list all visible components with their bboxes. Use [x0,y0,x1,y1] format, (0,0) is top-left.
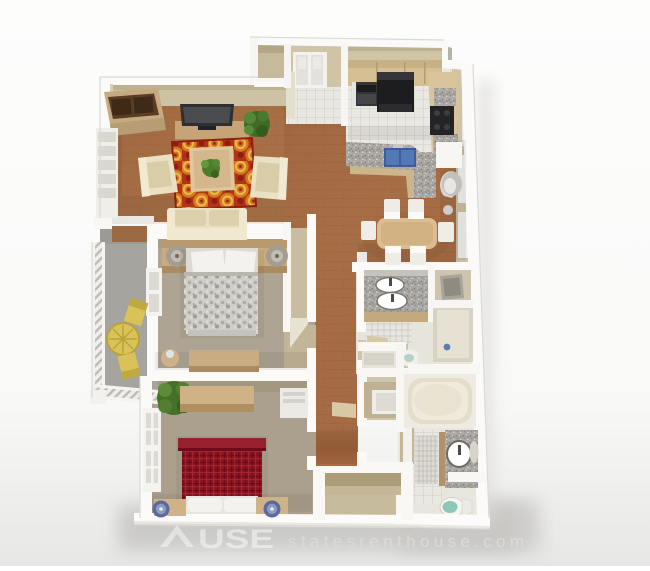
svg-text:USE: USE [198,524,274,554]
svg-text:statesrenthouse.com: statesrenthouse.com [288,532,524,551]
